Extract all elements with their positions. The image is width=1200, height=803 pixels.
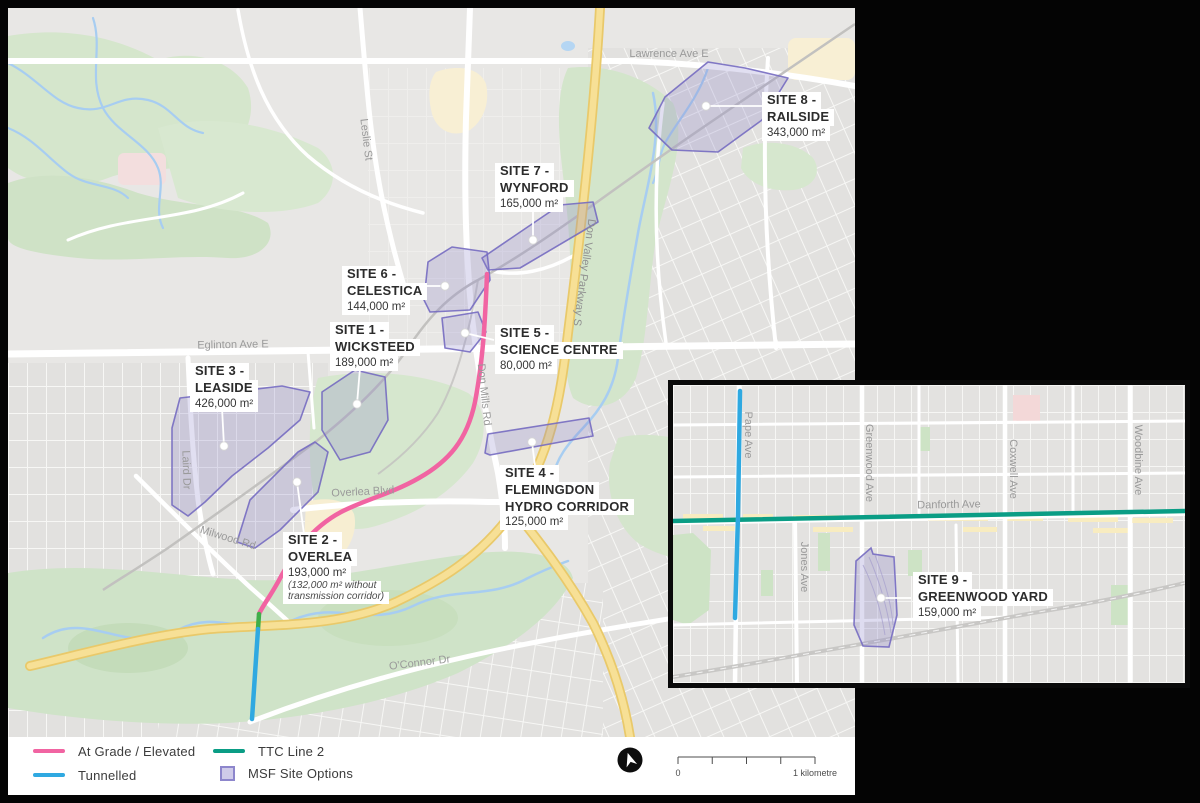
site-6-label: SITE 6 - CELESTICA 144,000 m² xyxy=(342,266,427,315)
legend-label-ttc: TTC Line 2 xyxy=(258,744,324,759)
legend-label-msf: MSF Site Options xyxy=(248,766,353,781)
legend-bar: At Grade / Elevated Tunnelled TTC Line 2… xyxy=(8,737,855,795)
portal-segment xyxy=(258,614,259,629)
site-4-label: SITE 4 - FLEMINGDON HYDRO CORRIDOR 125,0… xyxy=(500,465,634,530)
legend-label-tunnelled: Tunnelled xyxy=(78,768,136,783)
map-figure: Lawrence Ave E Leslie St Don Valley Park… xyxy=(0,0,1200,803)
site-9-label: SITE 9 - GREENWOOD YARD 159,000 m² xyxy=(913,572,1053,621)
site-9-dot xyxy=(877,594,885,602)
site-8-title: SITE 8 - xyxy=(762,92,821,109)
site-8-dot xyxy=(702,102,710,110)
scale-bar: 0 1 kilometre xyxy=(663,747,853,781)
site-1-dot xyxy=(353,400,361,408)
site-2-label: SITE 2 - OVERLEA 193,000 m² (132,000 m² … xyxy=(283,532,389,604)
inset-map: Pape Ave Jones Ave Greenwood Ave Coxwell… xyxy=(668,380,1190,688)
street-label-laird: Laird Dr xyxy=(179,450,192,490)
street-label-woodbine: Woodbine Ave xyxy=(1132,425,1144,496)
tunnelled-line-swatch xyxy=(33,773,65,777)
at-grade-line-swatch xyxy=(33,749,65,753)
legend-item-ttc: TTC Line 2 xyxy=(213,741,324,761)
msf-site-swatch xyxy=(220,766,235,781)
legend-item-msf: MSF Site Options xyxy=(213,763,353,783)
site-7-dot xyxy=(529,236,537,244)
street-label-pape: Pape Ave xyxy=(742,412,754,459)
street-label-greenwood: Greenwood Ave xyxy=(863,424,875,502)
site-4-dot xyxy=(528,438,536,446)
site-6-dot xyxy=(441,282,449,290)
ttc-line-swatch xyxy=(213,749,245,753)
site-3-dot xyxy=(220,442,228,450)
scale-zero-label: 0 xyxy=(675,768,680,778)
north-arrow-icon xyxy=(617,747,643,773)
inset-map-svg: Pape Ave Jones Ave Greenwood Ave Coxwell… xyxy=(673,385,1185,683)
site-5-label: SITE 5 - SCIENCE CENTRE 80,000 m² xyxy=(495,325,623,374)
street-label-jones: Jones Ave xyxy=(798,542,810,593)
legend-item-tunnelled: Tunnelled xyxy=(33,765,136,785)
site-5-dot xyxy=(461,329,469,337)
street-label-coxwell: Coxwell Ave xyxy=(1007,439,1019,499)
scale-km-label: 1 kilometre xyxy=(793,768,837,778)
site-7-label: SITE 7 - WYNFORD 165,000 m² xyxy=(495,163,574,212)
legend-item-at-grade: At Grade / Elevated xyxy=(33,741,195,761)
street-label-lawrence: Lawrence Ave E xyxy=(629,48,708,60)
site-1-label: SITE 1 - WICKSTEED 189,000 m² xyxy=(330,322,420,371)
site-8-area: 343,000 m² xyxy=(762,126,830,141)
site-3-label: SITE 3 - LEASIDE 426,000 m² xyxy=(190,363,258,412)
street-label-danforth: Danforth Ave xyxy=(917,498,981,511)
legend-label-at-grade: At Grade / Elevated xyxy=(78,744,195,759)
site-2-dot xyxy=(293,478,301,486)
site-8-label: SITE 8 - RAILSIDE 343,000 m² xyxy=(762,92,834,141)
street-label-eglinton: Eglinton Ave E xyxy=(197,338,269,351)
